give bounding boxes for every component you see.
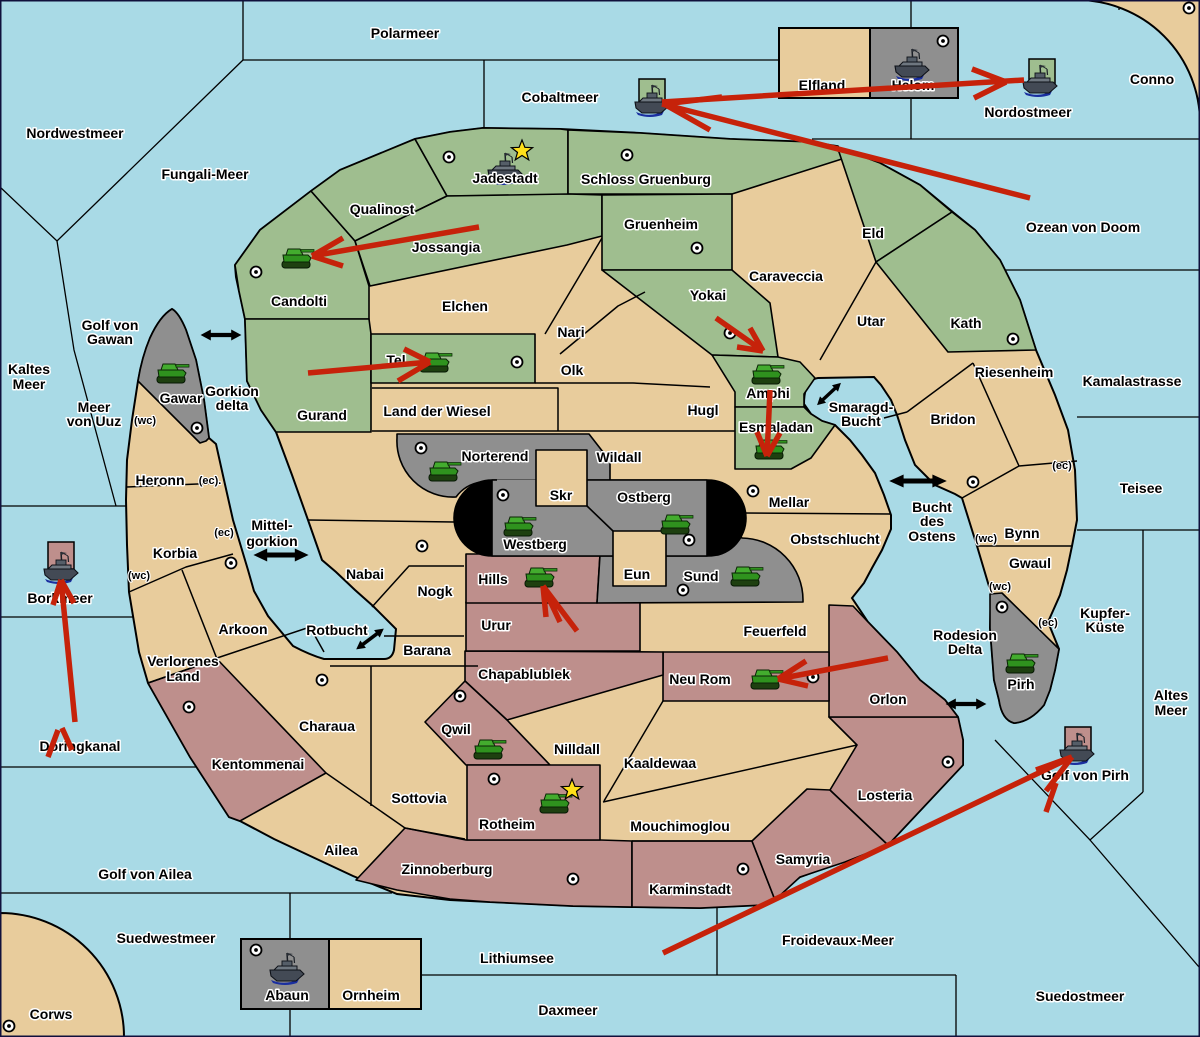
- svg-text:Gruenheim: Gruenheim: [624, 216, 698, 232]
- svg-text:(wc): (wc): [128, 570, 150, 582]
- svg-text:Nari: Nari: [557, 324, 584, 340]
- svg-text:Urur: Urur: [481, 617, 511, 633]
- svg-text:Kath: Kath: [950, 315, 981, 331]
- svg-text:Norterend: Norterend: [462, 448, 529, 464]
- svg-text:Olk: Olk: [561, 362, 584, 378]
- svg-text:Meer: Meer: [13, 376, 46, 392]
- svg-text:Lithiumsee: Lithiumsee: [480, 950, 554, 966]
- svg-text:(ec): (ec): [1038, 617, 1058, 629]
- svg-text:Nilldall: Nilldall: [554, 741, 600, 757]
- svg-text:Ozean von Doom: Ozean von Doom: [1026, 219, 1140, 235]
- svg-text:Kentommenai: Kentommenai: [212, 756, 305, 772]
- svg-text:Ostberg: Ostberg: [617, 489, 671, 505]
- svg-text:Obstschlucht: Obstschlucht: [790, 531, 880, 547]
- svg-text:Jadestadt: Jadestadt: [472, 170, 538, 186]
- svg-text:Samyria: Samyria: [776, 851, 831, 867]
- svg-text:Rotbucht: Rotbucht: [306, 622, 368, 638]
- svg-text:(wc): (wc): [975, 533, 997, 545]
- svg-text:Arkoon: Arkoon: [219, 621, 268, 637]
- svg-text:Bynn: Bynn: [1005, 525, 1040, 541]
- svg-text:Nordwestmeer: Nordwestmeer: [26, 125, 124, 141]
- svg-text:Suedostmeer: Suedostmeer: [1036, 988, 1125, 1004]
- svg-text:Kaaldewaa: Kaaldewaa: [624, 755, 697, 771]
- svg-text:Fungali-Meer: Fungali-Meer: [161, 166, 249, 182]
- svg-text:Teisee: Teisee: [1120, 480, 1163, 496]
- svg-text:Chapablublek: Chapablublek: [478, 666, 570, 682]
- svg-text:Froidevaux-Meer: Froidevaux-Meer: [782, 932, 895, 948]
- svg-text:Orlon: Orlon: [869, 691, 906, 707]
- svg-text:Conno: Conno: [1130, 71, 1174, 87]
- svg-text:Land: Land: [166, 668, 199, 684]
- svg-text:Sund: Sund: [684, 568, 719, 584]
- svg-text:Skr: Skr: [550, 487, 573, 503]
- svg-text:Feuerfeld: Feuerfeld: [743, 623, 806, 639]
- svg-text:Mittel-: Mittel-: [251, 517, 293, 533]
- svg-text:Charaua: Charaua: [299, 718, 355, 734]
- svg-text:Bucht: Bucht: [841, 413, 881, 429]
- svg-text:Candolti: Candolti: [271, 293, 327, 309]
- svg-text:Elchen: Elchen: [442, 298, 488, 314]
- svg-text:Westberg: Westberg: [503, 536, 567, 552]
- svg-text:Gurand: Gurand: [297, 407, 347, 423]
- svg-text:Nabai: Nabai: [346, 566, 384, 582]
- svg-text:Delta: Delta: [948, 641, 982, 657]
- svg-text:Kamalastrasse: Kamalastrasse: [1083, 373, 1182, 389]
- svg-text:Meer: Meer: [1155, 702, 1188, 718]
- svg-text:Cobaltmeer: Cobaltmeer: [521, 89, 599, 105]
- svg-text:Barana: Barana: [403, 642, 451, 658]
- svg-text:Bridon: Bridon: [930, 411, 975, 427]
- svg-text:Küste: Küste: [1086, 619, 1125, 635]
- svg-text:(wc): (wc): [134, 415, 156, 427]
- svg-text:Mouchimoglou: Mouchimoglou: [630, 818, 730, 834]
- svg-text:(ec): (ec): [1052, 460, 1072, 472]
- svg-text:Caraveccia: Caraveccia: [749, 268, 823, 284]
- svg-text:Mellar: Mellar: [769, 494, 810, 510]
- svg-text:gorkion: gorkion: [246, 533, 297, 549]
- svg-text:Land der Wiesel: Land der Wiesel: [383, 403, 490, 419]
- svg-text:Neu Rom: Neu Rom: [669, 671, 730, 687]
- svg-text:Suedwestmeer: Suedwestmeer: [117, 930, 216, 946]
- svg-text:Sottovia: Sottovia: [391, 790, 446, 806]
- svg-text:Nogk: Nogk: [418, 583, 453, 599]
- svg-text:Corws: Corws: [30, 1006, 73, 1022]
- svg-text:(ec).: (ec).: [199, 475, 222, 487]
- svg-text:Gawar: Gawar: [160, 390, 203, 406]
- svg-text:Hugl: Hugl: [687, 402, 718, 418]
- svg-text:Pirh: Pirh: [1007, 676, 1034, 692]
- svg-text:Ornheim: Ornheim: [342, 987, 400, 1003]
- svg-text:Eld: Eld: [862, 225, 884, 241]
- svg-text:delta: delta: [216, 397, 249, 413]
- svg-text:Yokai: Yokai: [690, 287, 726, 303]
- svg-text:Qwil: Qwil: [441, 721, 471, 737]
- svg-text:Ailea: Ailea: [324, 842, 358, 858]
- svg-text:Riesenheim: Riesenheim: [975, 364, 1054, 380]
- svg-text:Jossangia: Jossangia: [412, 239, 481, 255]
- svg-text:Polarmeer: Polarmeer: [371, 25, 440, 41]
- svg-text:Kaltes: Kaltes: [8, 361, 50, 377]
- svg-text:Schloss Gruenburg: Schloss Gruenburg: [581, 171, 711, 187]
- svg-text:(wc): (wc): [989, 581, 1011, 593]
- svg-text:Daxmeer: Daxmeer: [538, 1002, 598, 1018]
- svg-text:Eun: Eun: [624, 566, 650, 582]
- svg-text:Wildall: Wildall: [597, 449, 642, 465]
- svg-text:des: des: [920, 513, 944, 529]
- svg-text:Esmaladan: Esmaladan: [739, 419, 813, 435]
- svg-text:Utar: Utar: [857, 313, 886, 329]
- svg-text:Nordostmeer: Nordostmeer: [984, 104, 1072, 120]
- svg-text:(ec): (ec): [214, 527, 234, 539]
- svg-text:Ostens: Ostens: [908, 528, 956, 544]
- svg-text:Hills: Hills: [478, 571, 508, 587]
- svg-text:Zinnoberburg: Zinnoberburg: [402, 861, 493, 877]
- svg-text:Altes: Altes: [1154, 687, 1188, 703]
- svg-text:Qualinost: Qualinost: [350, 201, 415, 217]
- svg-text:Karminstadt: Karminstadt: [649, 881, 731, 897]
- svg-text:Korbia: Korbia: [153, 545, 198, 561]
- svg-text:von Uuz: von Uuz: [67, 413, 121, 429]
- svg-text:Losteria: Losteria: [858, 787, 913, 803]
- svg-text:Gwaul: Gwaul: [1009, 555, 1051, 571]
- svg-text:Verlorenes: Verlorenes: [147, 653, 219, 669]
- svg-text:Rotheim: Rotheim: [479, 816, 535, 832]
- svg-text:Abaun: Abaun: [265, 987, 309, 1003]
- svg-text:Golf von Ailea: Golf von Ailea: [98, 866, 192, 882]
- svg-text:Heronn: Heronn: [136, 472, 185, 488]
- svg-text:Gawan: Gawan: [87, 331, 133, 347]
